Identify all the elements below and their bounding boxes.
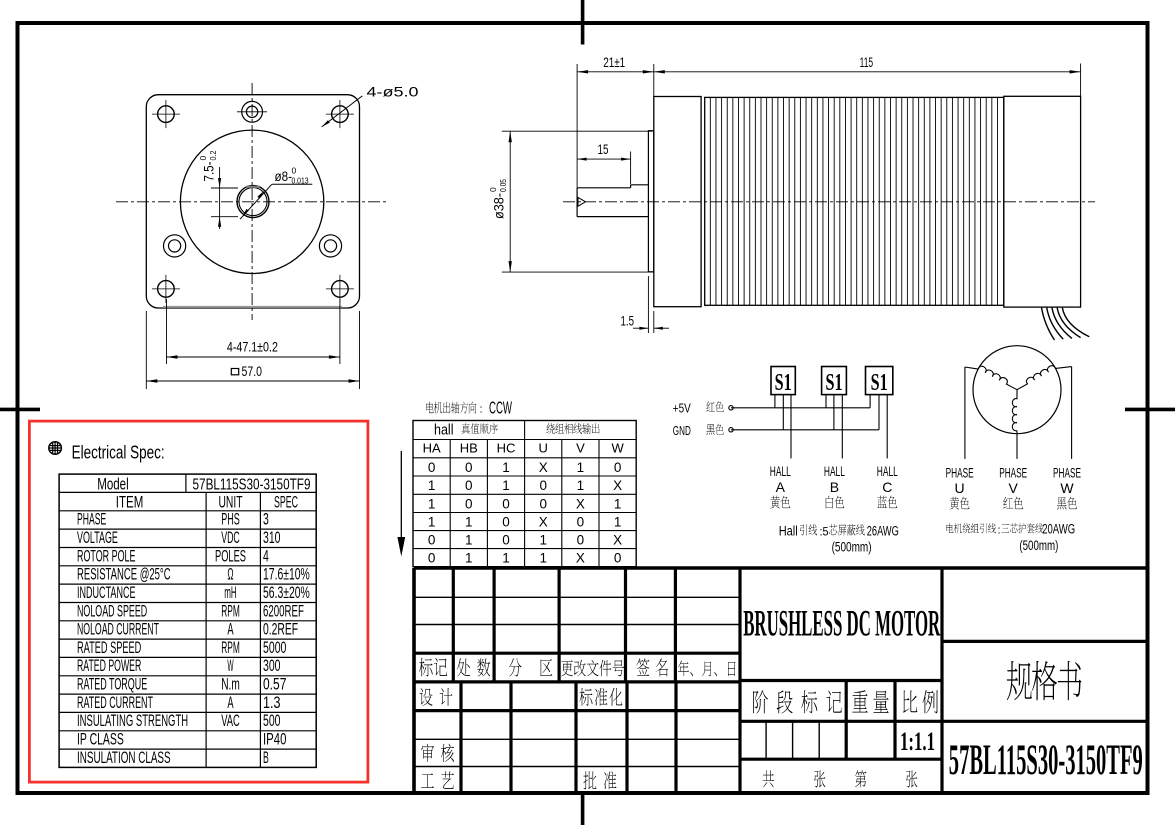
svg-text:0: 0: [488, 187, 498, 192]
svg-text:15: 15: [598, 141, 609, 157]
svg-text:1: 1: [465, 551, 473, 566]
svg-text:INSULATING STRENGTH: INSULATING STRENGTH: [77, 712, 188, 730]
svg-text:A: A: [776, 479, 786, 495]
svg-text::: :: [998, 525, 1001, 537]
svg-text:7.5-: 7.5-: [202, 162, 217, 182]
svg-text:UNIT: UNIT: [219, 494, 243, 512]
svg-text:RATED SPEED: RATED SPEED: [77, 639, 141, 657]
svg-text:500: 500: [263, 712, 281, 730]
svg-text:U: U: [539, 441, 548, 456]
svg-text:HA: HA: [423, 441, 441, 456]
svg-text:IP40: IP40: [263, 731, 286, 749]
svg-text:RPM: RPM: [221, 639, 240, 657]
svg-text:HALL: HALL: [770, 463, 791, 479]
svg-text:X: X: [613, 478, 622, 493]
svg-text:3: 3: [263, 511, 269, 529]
svg-text:6200REF: 6200REF: [263, 602, 304, 620]
svg-text:RATED POWER: RATED POWER: [77, 657, 141, 675]
svg-text:1: 1: [502, 478, 510, 493]
svg-text:B: B: [830, 479, 839, 495]
svg-text:A: A: [227, 694, 233, 712]
svg-text:1: 1: [465, 533, 473, 548]
svg-text:CCW: CCW: [489, 399, 512, 418]
svg-text:PHASE: PHASE: [77, 511, 106, 529]
svg-text:(500mm): (500mm): [1019, 538, 1058, 553]
svg-text:PHASE: PHASE: [946, 465, 974, 481]
svg-text:1: 1: [502, 460, 510, 475]
svg-text:0: 0: [539, 496, 547, 511]
svg-text:1: 1: [539, 533, 547, 548]
svg-text:hall: hall: [434, 423, 454, 439]
svg-text:Model: Model: [97, 475, 129, 494]
svg-text:26AWG: 26AWG: [867, 524, 899, 539]
svg-text:PHS: PHS: [221, 511, 240, 529]
svg-text:0: 0: [502, 533, 510, 548]
svg-text:HALL: HALL: [824, 463, 845, 479]
svg-text:X: X: [539, 515, 548, 530]
svg-text:HB: HB: [460, 441, 478, 456]
svg-text:U: U: [955, 480, 965, 496]
svg-text:IP CLASS: IP CLASS: [77, 731, 124, 749]
svg-text:300: 300: [263, 657, 281, 675]
svg-text:B: B: [263, 749, 269, 767]
svg-text:X: X: [576, 551, 585, 566]
svg-text:(500mm): (500mm): [832, 540, 872, 555]
svg-text:V: V: [1009, 480, 1019, 496]
svg-text:X: X: [539, 460, 548, 475]
svg-text:1: 1: [428, 515, 436, 530]
svg-text:57BL115S30-3150TF9: 57BL115S30-3150TF9: [193, 477, 311, 494]
svg-text:115: 115: [860, 54, 874, 70]
svg-text:Hall: Hall: [779, 523, 798, 539]
svg-text:HC: HC: [497, 441, 516, 456]
svg-text:W: W: [227, 657, 233, 675]
svg-text:0: 0: [465, 460, 473, 475]
svg-text:1: 1: [577, 460, 585, 475]
svg-text:0: 0: [428, 533, 436, 548]
svg-text:BRUSHLESS DC MOTOR: BRUSHLESS DC MOTOR: [743, 603, 940, 644]
svg-text:21±1: 21±1: [603, 54, 625, 70]
svg-text:PHASE: PHASE: [999, 465, 1027, 481]
svg-text:1.5: 1.5: [621, 314, 635, 329]
svg-text:0.2REF: 0.2REF: [263, 621, 298, 639]
svg-text:INSULATION CLASS: INSULATION CLASS: [77, 749, 171, 767]
svg-text:0: 0: [465, 496, 473, 511]
svg-text:W: W: [611, 441, 624, 456]
svg-text:S1: S1: [871, 369, 888, 396]
svg-text:Ω: Ω: [227, 566, 233, 584]
svg-text:310: 310: [263, 529, 281, 547]
svg-text:0: 0: [502, 496, 510, 511]
svg-text:56.3±20%: 56.3±20%: [263, 584, 310, 602]
svg-text:1: 1: [428, 496, 436, 511]
svg-text:1:1.1: 1:1.1: [900, 728, 935, 757]
svg-text:57.0: 57.0: [242, 363, 263, 379]
svg-text:0.57: 0.57: [263, 676, 286, 694]
svg-text:4-ø5.0: 4-ø5.0: [367, 85, 419, 100]
svg-text:20AWG: 20AWG: [1042, 522, 1075, 537]
svg-text:1: 1: [428, 478, 436, 493]
svg-text:+5V: +5V: [673, 401, 691, 416]
svg-text:X: X: [576, 496, 585, 511]
svg-text:ROTOR POLE: ROTOR POLE: [77, 547, 136, 565]
svg-text:HALL: HALL: [877, 463, 898, 479]
svg-text:57BL115S30-3150TF9: 57BL115S30-3150TF9: [949, 736, 1143, 784]
svg-text:17.6±10%: 17.6±10%: [263, 566, 310, 584]
svg-text:1: 1: [465, 515, 473, 530]
svg-text:5000: 5000: [263, 639, 286, 657]
svg-text:RPM: RPM: [221, 602, 240, 620]
svg-text:0.05: 0.05: [498, 179, 508, 192]
svg-text:1: 1: [502, 551, 510, 566]
svg-text:S1: S1: [826, 369, 843, 396]
svg-text:INDUCTANCE: INDUCTANCE: [77, 584, 136, 602]
svg-text:C: C: [882, 479, 892, 495]
svg-text:RESISTANCE @25°C: RESISTANCE @25°C: [77, 566, 171, 584]
svg-text:A: A: [227, 621, 233, 639]
svg-text::5: :5: [820, 527, 829, 539]
svg-text:POLES: POLES: [215, 547, 246, 565]
svg-text:0: 0: [539, 478, 547, 493]
svg-text:VOLTAGE: VOLTAGE: [77, 529, 118, 547]
svg-text:NOLOAD SPEED: NOLOAD SPEED: [77, 602, 147, 620]
svg-text:S1: S1: [775, 369, 792, 396]
svg-text:ø38-: ø38-: [492, 193, 507, 219]
svg-text:NOLOAD CURRENT: NOLOAD CURRENT: [77, 621, 159, 639]
svg-text:V: V: [576, 441, 585, 456]
svg-text:N.m: N.m: [221, 676, 240, 694]
svg-text:0: 0: [577, 533, 585, 548]
svg-text:X: X: [613, 533, 622, 548]
svg-text:1: 1: [614, 515, 622, 530]
svg-text:0: 0: [428, 551, 436, 566]
svg-text:0: 0: [577, 515, 585, 530]
svg-text:0: 0: [465, 478, 473, 493]
svg-text:1: 1: [539, 551, 547, 566]
svg-text:mH: mH: [224, 584, 236, 602]
svg-text:ø8-: ø8-: [275, 169, 293, 184]
svg-text:4: 4: [263, 547, 269, 565]
svg-text:0: 0: [428, 460, 436, 475]
svg-text:PHASE: PHASE: [1053, 465, 1081, 481]
svg-text:VAC: VAC: [221, 712, 240, 730]
svg-text:W: W: [1060, 480, 1074, 496]
svg-text:1: 1: [577, 478, 585, 493]
svg-text:0: 0: [614, 460, 622, 475]
svg-text:0: 0: [614, 551, 622, 566]
svg-text:Electrical Spec:: Electrical Spec:: [72, 442, 165, 462]
svg-text:0.2: 0.2: [208, 150, 218, 160]
svg-text:4-47.1±0.2: 4-47.1±0.2: [227, 339, 278, 355]
svg-text:ITEM: ITEM: [116, 494, 144, 512]
svg-text:0: 0: [198, 156, 208, 161]
svg-text:VDC: VDC: [221, 529, 240, 547]
svg-text:RATED TORQUE: RATED TORQUE: [77, 676, 147, 694]
svg-text:1.3: 1.3: [263, 694, 281, 712]
svg-text:RATED CURRENT: RATED CURRENT: [77, 694, 153, 712]
svg-text::: :: [480, 404, 483, 416]
svg-text:0: 0: [502, 515, 510, 530]
svg-text:0.013: 0.013: [292, 176, 309, 186]
svg-text:SPEC: SPEC: [274, 494, 298, 512]
svg-text:GND: GND: [673, 423, 691, 438]
svg-text:0: 0: [292, 166, 297, 176]
svg-text:1: 1: [614, 496, 622, 511]
